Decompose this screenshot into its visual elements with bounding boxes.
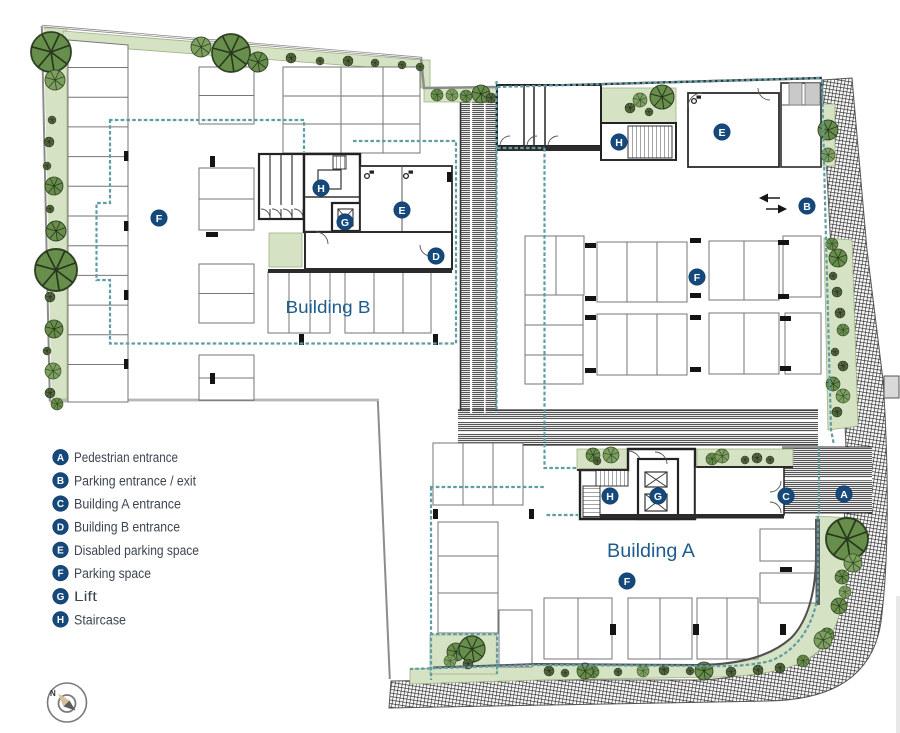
svg-text:G: G — [341, 217, 349, 229]
svg-text:D: D — [432, 251, 440, 263]
svg-text:Building B: Building B — [286, 297, 371, 317]
svg-text:Building B entrance: Building B entrance — [74, 520, 180, 536]
svg-text:H: H — [317, 183, 325, 195]
svg-text:N: N — [50, 689, 56, 698]
svg-text:D: D — [57, 522, 64, 533]
svg-text:E: E — [718, 127, 725, 139]
svg-text:G: G — [57, 592, 65, 603]
svg-text:B: B — [803, 201, 811, 213]
svg-text:F: F — [694, 272, 701, 284]
svg-text:A: A — [840, 489, 848, 501]
svg-text:Pedestrian entrance: Pedestrian entrance — [74, 450, 178, 466]
svg-text:F: F — [624, 576, 631, 588]
svg-text:H: H — [57, 615, 64, 626]
svg-text:Lift: Lift — [74, 589, 97, 605]
svg-text:Staircase: Staircase — [74, 612, 126, 628]
svg-text:Parking space: Parking space — [74, 566, 151, 582]
svg-text:B: B — [57, 476, 64, 487]
svg-text:F: F — [156, 213, 163, 225]
svg-text:C: C — [782, 491, 790, 503]
svg-text:Disabled parking space: Disabled parking space — [74, 543, 199, 559]
svg-text:C: C — [57, 499, 64, 510]
svg-text:A: A — [57, 453, 64, 464]
svg-text:Building A entrance: Building A entrance — [74, 497, 181, 513]
svg-text:H: H — [606, 491, 614, 503]
svg-text:Building A: Building A — [607, 541, 695, 562]
svg-text:E: E — [57, 545, 64, 556]
svg-text:Parking entrance / exit: Parking entrance / exit — [74, 473, 196, 489]
svg-text:F: F — [57, 569, 63, 580]
svg-text:E: E — [398, 205, 405, 217]
svg-text:G: G — [654, 491, 662, 503]
svg-text:H: H — [615, 137, 623, 149]
